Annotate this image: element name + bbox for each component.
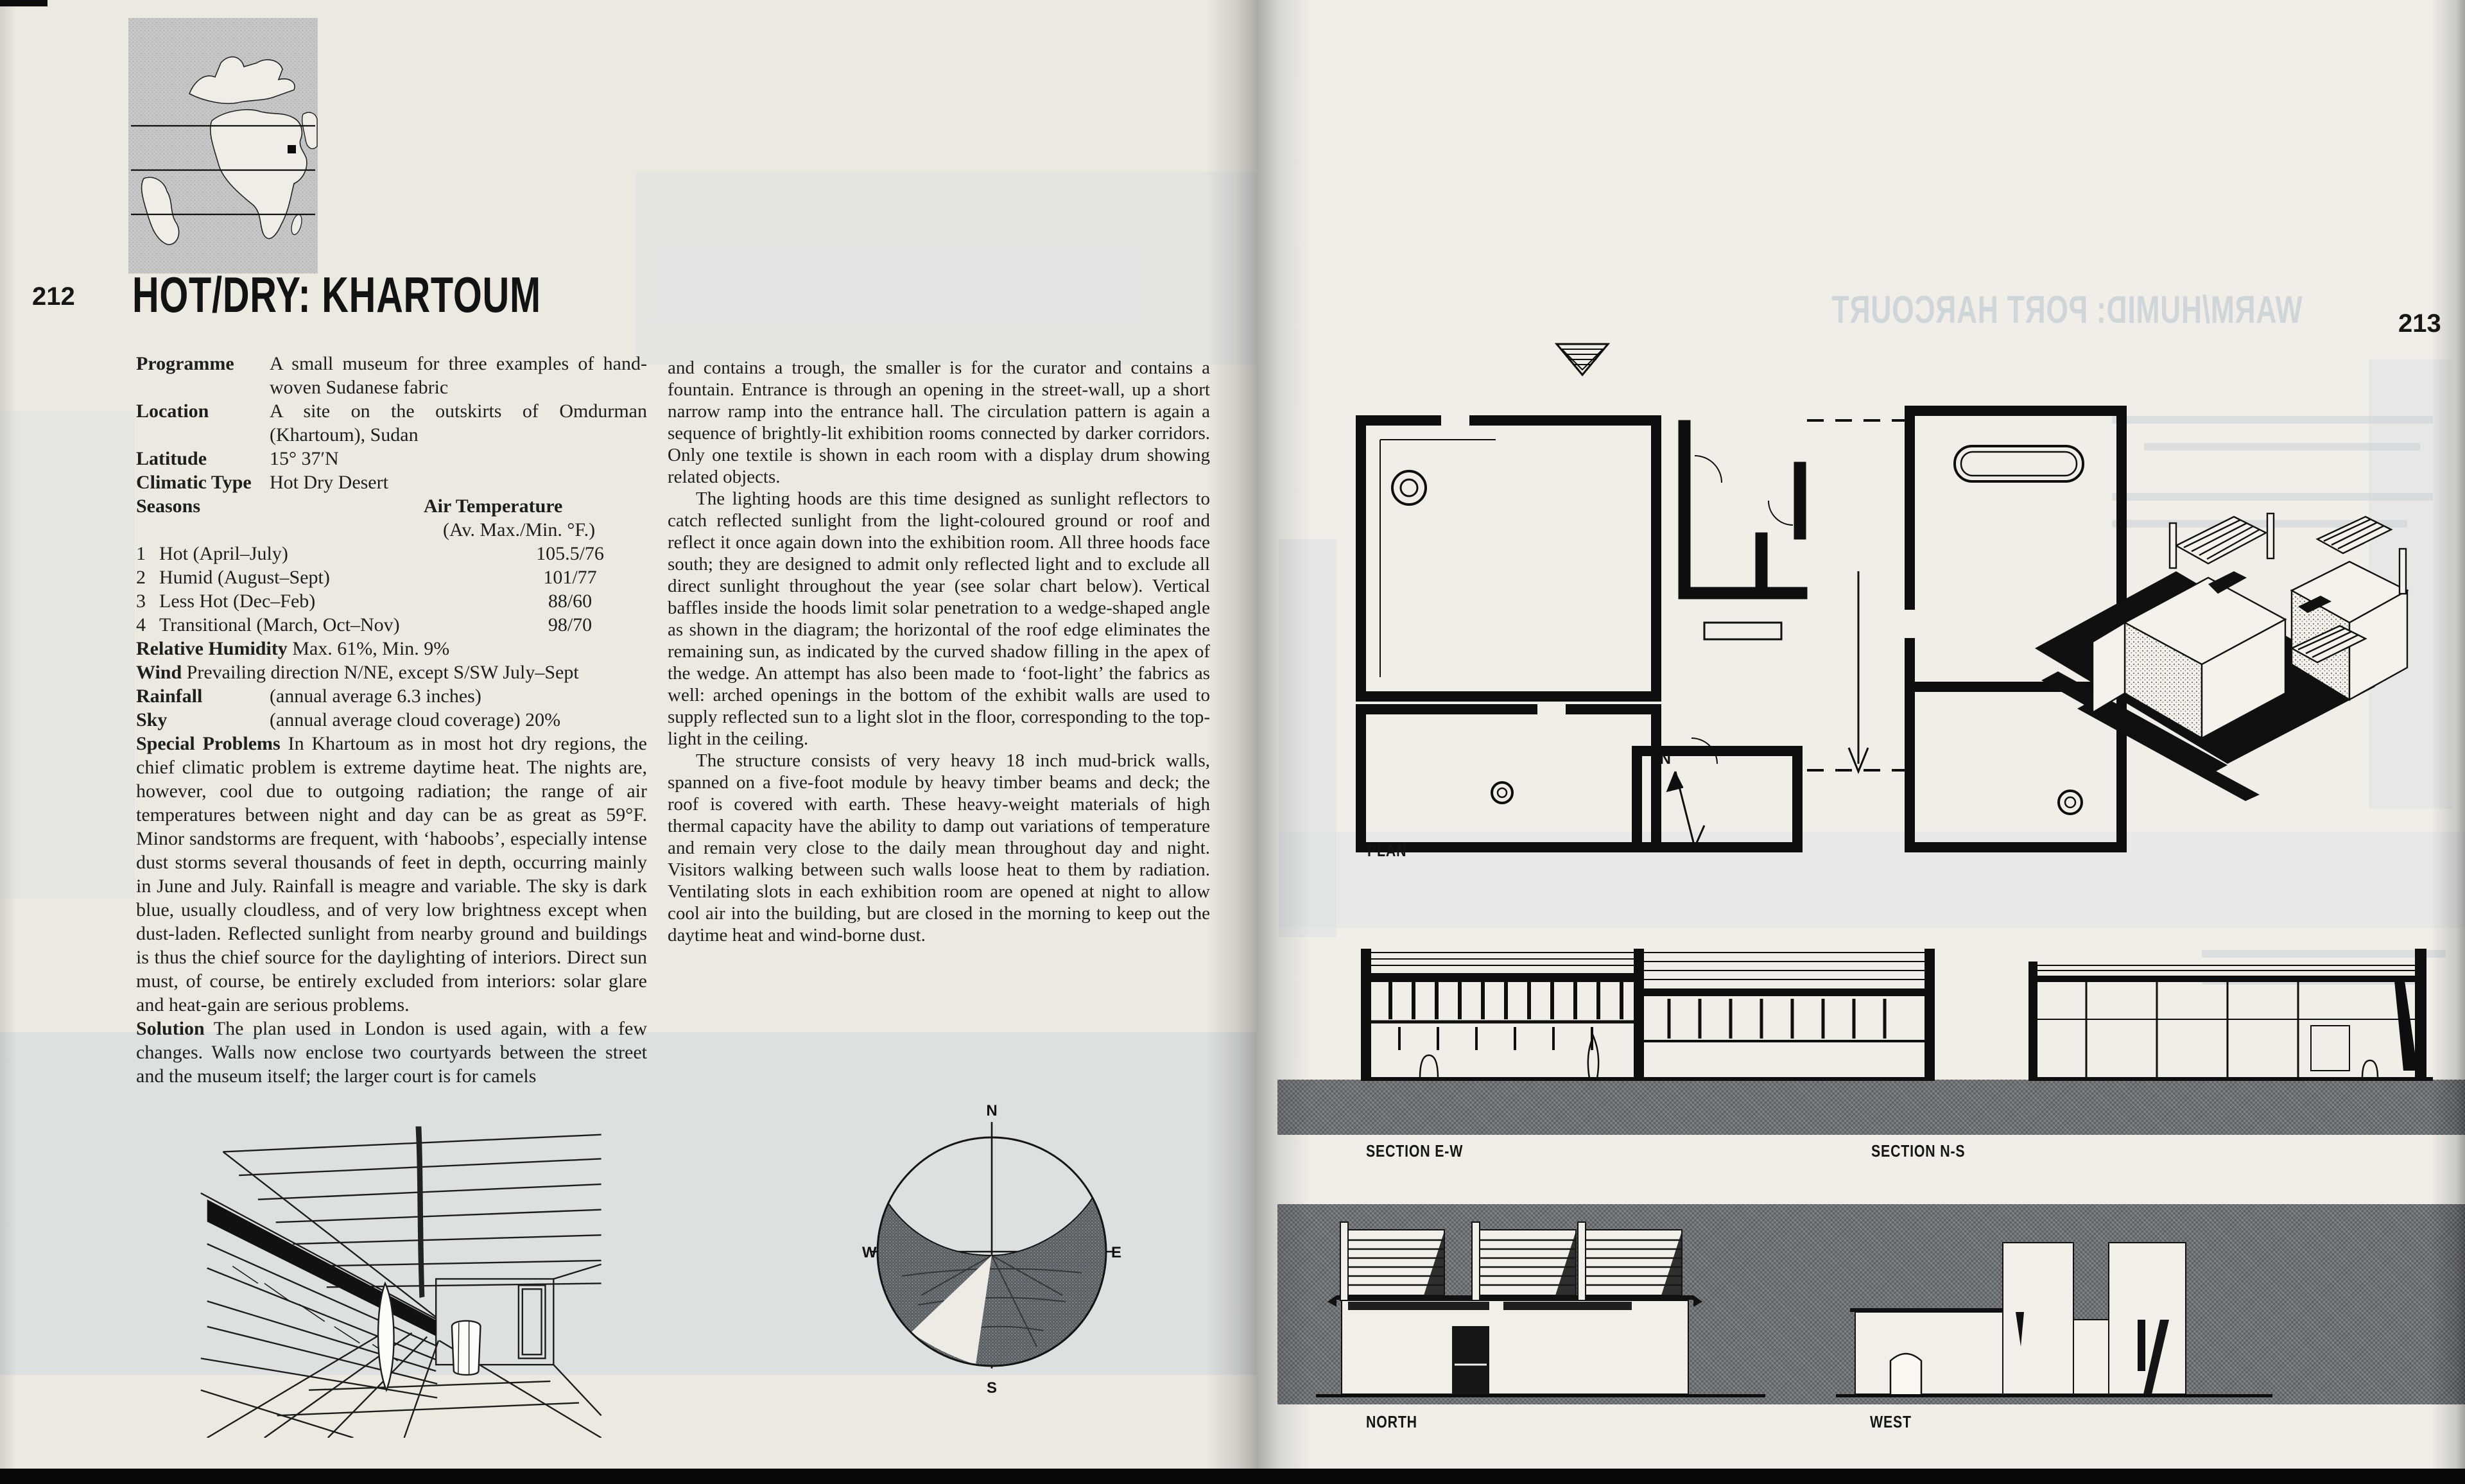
humidity-value: Max. 61%, Min. 9% (288, 638, 449, 659)
humidity-label: Relative Humidity (136, 638, 288, 659)
season-row: 3 Less Hot (Dec–Feb) 88/60 (136, 589, 647, 613)
seasons-header-row: Seasons Air Temperature (136, 494, 647, 518)
fact-value: 15° 37′N (270, 447, 647, 470)
fact-climatic-type: Climatic Type Hot Dry Desert (136, 470, 647, 494)
fact-value: (annual average 6.3 inches) (270, 684, 647, 708)
season-name: Humid (August–Sept) (159, 565, 493, 589)
scan-edge-sliver (0, 0, 48, 6)
season-row: 2 Humid (August–Sept) 101/77 (136, 565, 647, 589)
elevations-drawing (1277, 1204, 2465, 1404)
season-row: 4 Transitional (March, Oct–Nov) 98/70 (136, 613, 647, 637)
section-ew-label: SECTION E-W (1366, 1141, 1463, 1161)
seasons-label: Seasons (136, 494, 424, 518)
plan-label: PLAN (1367, 841, 1406, 861)
fact-value: (annual average cloud coverage) 20% (270, 708, 647, 732)
body-paragraph-1: and contains a trough, the smaller is fo… (668, 357, 1210, 488)
fact-label: Programme (136, 352, 270, 399)
book-gutter-shadow (1206, 0, 1311, 1469)
fact-rainfall: Rainfall (annual average 6.3 inches) (136, 684, 647, 708)
air-temperature-sub: (Av. Max./Min. °F.) (136, 518, 647, 542)
interior-perspective-drawing (160, 1117, 603, 1438)
north-elevation-label: NORTH (1366, 1412, 1417, 1432)
page-edge-shadow-left (0, 0, 17, 1469)
page-edge-shadow-right (2430, 0, 2465, 1469)
page-title: HOT/DRY: KHARTOUM (132, 266, 541, 324)
solution-label: Solution (136, 1018, 205, 1039)
book-spread: 212 HOT/DRY: KHARTOUM Programme A small … (0, 0, 2465, 1484)
climate-data-column: Programme A small museum for three examp… (136, 352, 647, 1088)
fact-sky: Sky (annual average cloud coverage) 20% (136, 708, 647, 732)
solution-paragraph: Solution The plan used in London is used… (136, 1017, 647, 1088)
fact-label: Rainfall (136, 684, 270, 708)
season-value: 105.5/76 (493, 542, 647, 565)
fact-value: A site on the outskirts of Omdurman (Kha… (270, 399, 647, 447)
showthrough-title: WARM/HUMID: PORT HARCOURT (1817, 288, 2317, 332)
plan-north-arrow-label: N (1660, 750, 1671, 768)
west-elevation-label: WEST (1870, 1412, 1912, 1432)
showthrough-line (2144, 443, 2420, 451)
fact-value: A small museum for three examples of han… (270, 352, 647, 399)
season-name: Less Hot (Dec–Feb) (159, 589, 493, 613)
solar-west-label: W (862, 1244, 877, 1261)
khartoum-marker (288, 145, 296, 153)
season-num: 2 (136, 565, 159, 589)
humidity-line: Relative Humidity Max. 61%, Min. 9% (136, 637, 647, 660)
season-row: 1 Hot (April–July) 105.5/76 (136, 542, 647, 565)
fact-label: Climatic Type (136, 470, 270, 494)
wind-label: Wind (136, 662, 182, 683)
section-ns-label: SECTION N-S (1871, 1141, 1965, 1161)
special-problems-paragraph: Special Problems In Khartoum as in most … (136, 732, 647, 1017)
body-paragraph-3: The structure consists of very heavy 18 … (668, 750, 1210, 946)
solar-north-label: N (986, 1103, 997, 1119)
sections-ground-band (1277, 1080, 2465, 1135)
air-temperature-header: Air Temperature (424, 494, 562, 518)
page-number-left: 212 (32, 282, 75, 311)
world-map (128, 18, 318, 273)
sections-drawing (1348, 942, 2439, 1087)
fact-label: Location (136, 399, 270, 447)
special-problems-text: In Khartoum as in most hot dry regions, … (136, 733, 647, 1015)
solution-text: The plan used in London is used again, w… (136, 1018, 647, 1087)
showthrough-line (2112, 416, 2433, 424)
book-bottom-edge (0, 1469, 2465, 1484)
season-value: 101/77 (493, 565, 647, 589)
season-num: 4 (136, 613, 159, 637)
season-num: 3 (136, 589, 159, 613)
fact-label: Latitude (136, 447, 270, 470)
body-paragraph-2: The lighting hoods are this time designe… (668, 488, 1210, 750)
special-problems-label: Special Problems (136, 733, 281, 754)
solar-south-label: S (987, 1379, 997, 1397)
wind-line: Wind Prevailing direction N/NE, except S… (136, 660, 647, 684)
season-name: Transitional (March, Oct–Nov) (159, 613, 493, 637)
fact-value: Hot Dry Desert (270, 470, 647, 494)
fact-programme: Programme A small museum for three examp… (136, 352, 647, 399)
fact-label: Sky (136, 708, 270, 732)
axonometric-drawing (2016, 488, 2439, 809)
solar-chart: N S W E (857, 1103, 1127, 1398)
season-num: 1 (136, 542, 159, 565)
season-name: Hot (April–July) (159, 542, 493, 565)
season-value: 98/70 (493, 613, 647, 637)
season-value: 88/60 (493, 589, 647, 613)
fact-latitude: Latitude 15° 37′N (136, 447, 647, 470)
fact-location: Location A site on the outskirts of Omdu… (136, 399, 647, 447)
solar-east-label: E (1111, 1244, 1121, 1261)
wind-value: Prevailing direction N/NE, except S/SW J… (182, 662, 579, 683)
body-text-column: and contains a trough, the smaller is fo… (668, 357, 1210, 946)
